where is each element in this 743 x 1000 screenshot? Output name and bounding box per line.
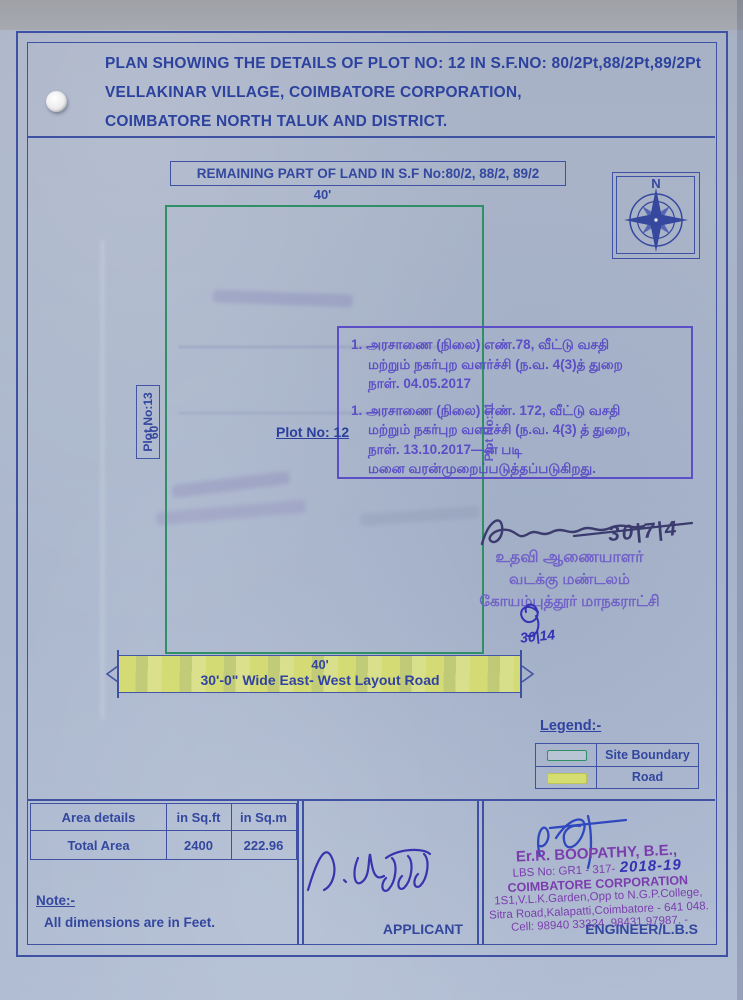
title-line-3: COIMBATORE NORTH TALUK AND DISTRICT. xyxy=(105,107,705,136)
footer-divider-1a xyxy=(297,799,299,944)
footer-top-border xyxy=(28,799,715,801)
legend-table: Site Boundary Road xyxy=(535,743,699,789)
plot12-label: Plot No: 12 xyxy=(276,424,349,440)
road-label: 30'-0" Wide East- West Layout Road xyxy=(118,672,522,688)
legend-site-boundary-label: Site Boundary xyxy=(597,744,698,766)
area-table-header-3: in Sq.m xyxy=(231,804,296,830)
stamp-item2-line4: மனை வரன்முறைப்படுத்தப்படுகிறது. xyxy=(351,459,691,479)
applicant-label: APPLICANT xyxy=(303,921,469,937)
area-table-sqft-value: 2400 xyxy=(166,831,231,859)
compass-rose-icon: N xyxy=(616,174,696,254)
legend-road-swatch xyxy=(547,773,587,784)
compass-box: N xyxy=(612,172,700,259)
legend-road-label: Road xyxy=(597,766,698,788)
area-table-header-2: in Sq.ft xyxy=(166,804,231,830)
note-text: All dimensions are in Feet. xyxy=(44,915,215,930)
road-dimension: 40' xyxy=(118,657,522,672)
area-table-total-label: Total Area xyxy=(31,831,166,859)
officer-stamp-block: உதவி ஆணையாளர் வடக்கு மண்டலம் கோயம்புத்தூ… xyxy=(462,547,677,613)
engineer-stamp-lbs: LBS No: GR1 - 317- xyxy=(512,863,615,879)
officer-stamp-line1: உதவி ஆணையாளர் xyxy=(462,547,677,569)
legend-site-boundary-swatch xyxy=(547,750,587,761)
title-separator xyxy=(28,136,715,138)
applicant-signature xyxy=(300,828,470,908)
top-scan-margin xyxy=(0,0,743,30)
area-table-sqm-value: 222.96 xyxy=(231,831,296,859)
note-title: Note:- xyxy=(36,893,75,908)
footer-divider-2a xyxy=(477,799,479,944)
area-table-header-1: Area details xyxy=(31,804,166,830)
stamp-item1-line1: 1. அரசாணை (நிலை) எண்.78, வீட்டு வசதி xyxy=(351,335,691,355)
title-line-2: VELLAKINAR VILLAGE, COIMBATORE CORPORATI… xyxy=(105,78,705,107)
plot-top-dimension: 40' xyxy=(165,187,480,202)
engineer-label: ENGINEER/L.B.S xyxy=(483,921,708,937)
stamp-item2-line3: நாள். 13.10.2017—ன் படி xyxy=(351,440,691,460)
scanned-plan-document: PLAN SHOWING THE DETAILS OF PLOT NO: 12 … xyxy=(0,0,743,1000)
stamp-item2-line1: 1. அரசாணை (நிலை) எண். 172, வீட்டு வசதி xyxy=(351,401,691,421)
remaining-land-label: REMAINING PART OF LAND IN S.F No:80/2, 8… xyxy=(197,166,540,181)
officer-stamp-line2: வடக்கு மண்டலம் xyxy=(462,569,677,591)
plot-left-dimension: 60' xyxy=(147,416,161,446)
officer-stamp-line3: கோயம்புத்தூர் மாநகராட்சி xyxy=(462,591,677,613)
approval-stamp-box: 1. அரசாணை (நிலை) எண்.78, வீட்டு வசதி மற்… xyxy=(337,326,693,479)
area-table: Area details in Sq.ft in Sq.m Total Area… xyxy=(30,803,297,860)
remaining-land-box: REMAINING PART OF LAND IN S.F No:80/2, 8… xyxy=(170,161,566,186)
legend-title: Legend:- xyxy=(540,718,601,734)
stamp-item2-line2: மற்றும் நகர்புற வளர்ச்சி (ந.வ. 4(3) த் த… xyxy=(351,420,691,440)
title-block: PLAN SHOWING THE DETAILS OF PLOT NO: 12 … xyxy=(105,49,705,136)
stamp-item1-line3: நாள். 04.05.2017 xyxy=(351,374,691,394)
right-edge-shadow xyxy=(737,0,743,1000)
stamp-item1-line2: மற்றும் நகர்புற வளர்ச்சி (ந.வ. 4(3)த் து… xyxy=(351,355,691,375)
engineer-stamp-lbs-handwritten: 2018-19 xyxy=(619,856,682,876)
road-right-arrow-icon xyxy=(520,664,536,684)
title-line-1: PLAN SHOWING THE DETAILS OF PLOT NO: 12 … xyxy=(105,49,705,78)
